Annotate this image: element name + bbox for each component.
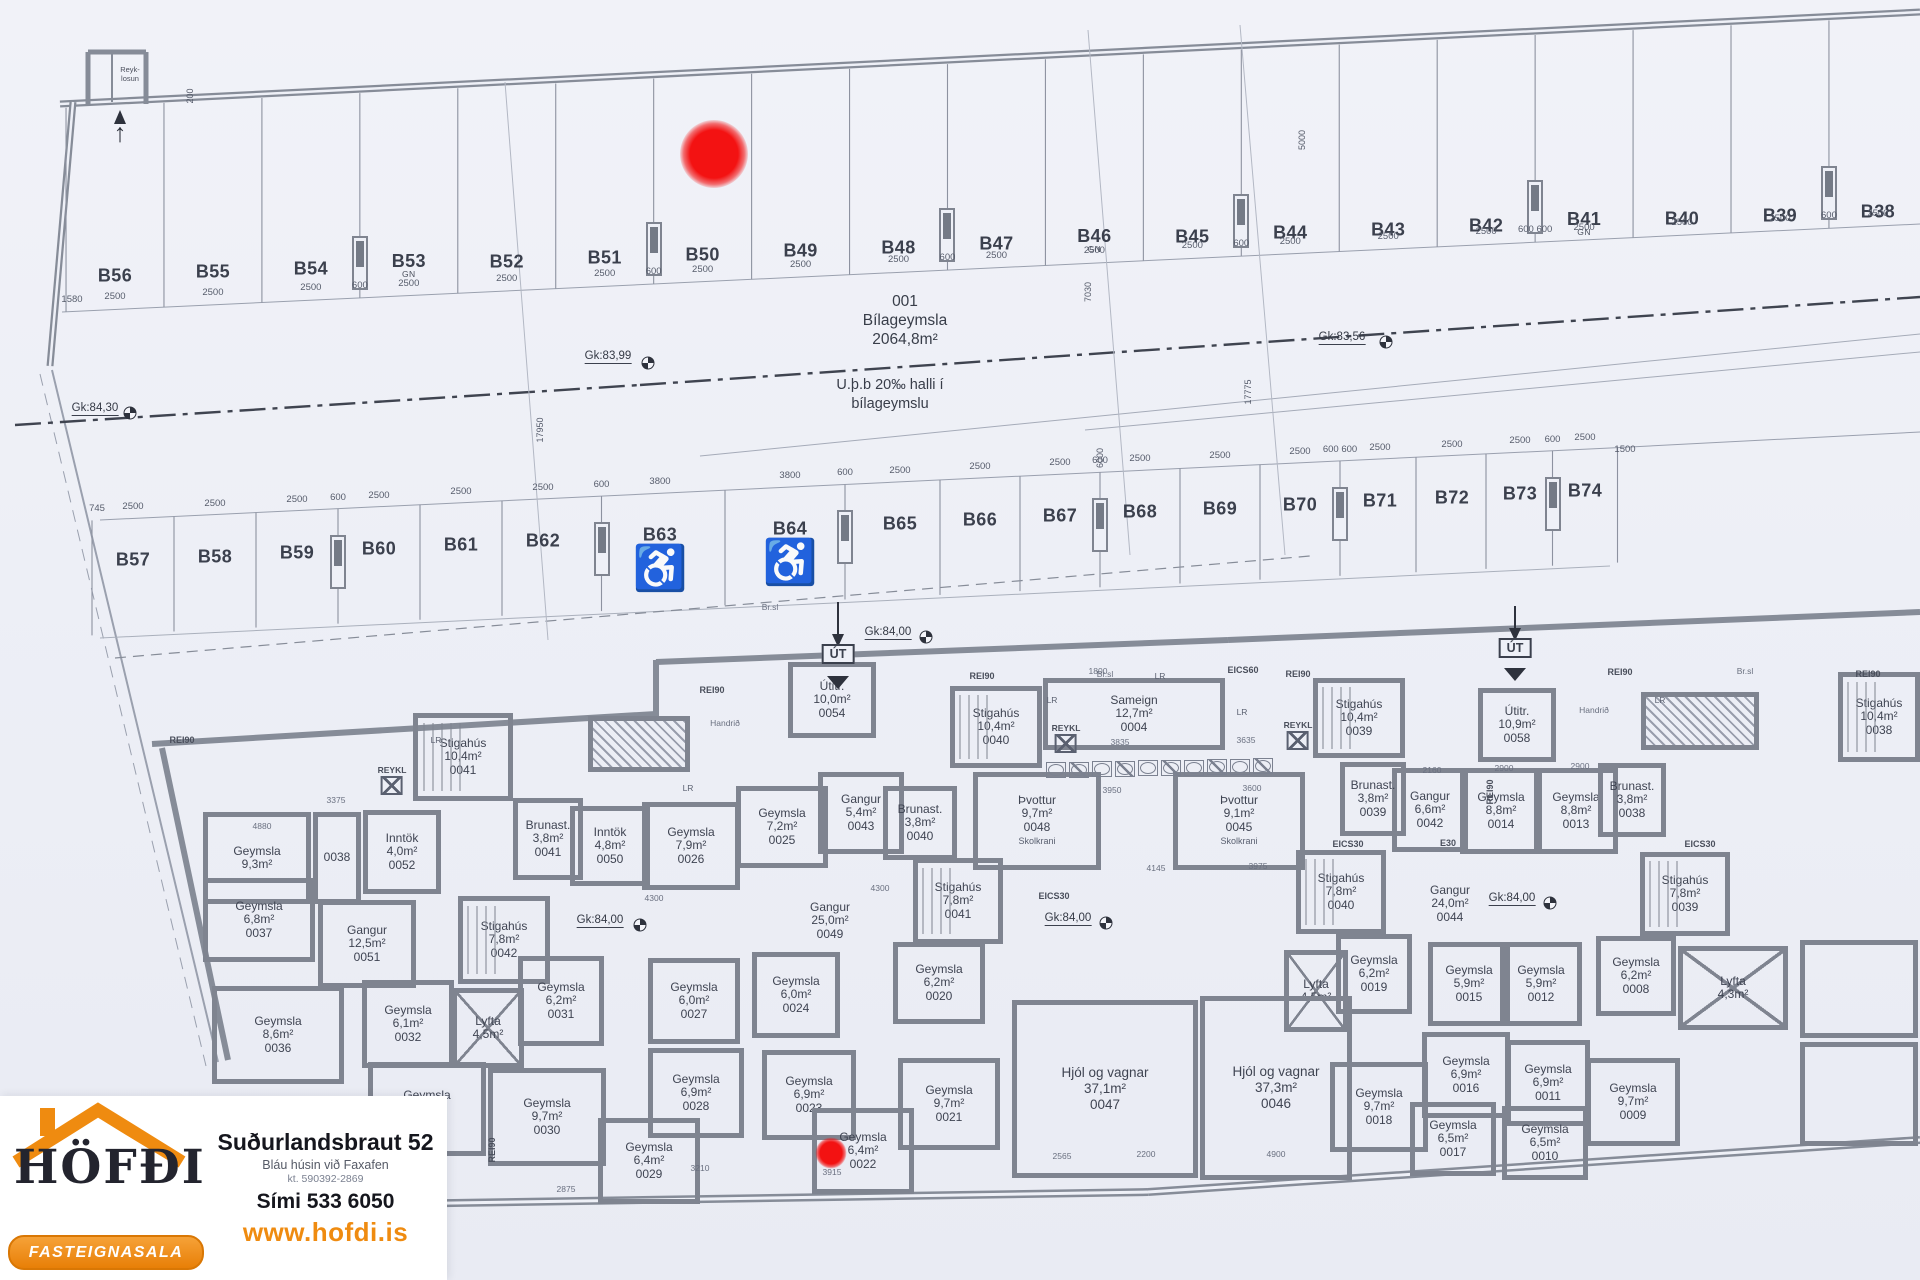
garage-area-name: Bílageymsla (830, 311, 980, 330)
floorplan-sheet: 001 Bílageymsla 2064,8m² U.þ.b 20‰ halli… (0, 0, 1920, 1280)
brsl-label: Br.sl (762, 602, 779, 612)
smoke-detector: REYKL (1284, 720, 1313, 750)
stall-dim: 2500 (888, 254, 909, 265)
agency-banner: FASTEIGNASALA (8, 1235, 204, 1270)
washer-icon (1207, 759, 1227, 775)
level-label: Gk:84,00 (1489, 892, 1536, 906)
dimension-label: 3210 (691, 1163, 710, 1173)
dimension-label-vertical: 17950 (535, 417, 545, 442)
benchmark-icon (124, 407, 137, 420)
slope-note-line2: bílageymslu (800, 395, 980, 414)
wall-rating-label: REI90 (1285, 669, 1310, 679)
room-0038: Brunast.3,8m²0038 (1598, 763, 1666, 837)
stall-dim: 2500 (1574, 432, 1595, 443)
room-0010: Geymsla6,5m²0010 (1502, 1106, 1588, 1180)
plan-line (60, 12, 1920, 104)
door-label: LR (1655, 695, 1666, 705)
smoke-detector: REYKL (1052, 723, 1081, 753)
room-0015: Geymsla5,9m²0015 (1428, 942, 1510, 1026)
exit-arrow-icon (1504, 668, 1526, 681)
room-0031: Geymsla6,2m²0031 (518, 956, 604, 1046)
parking-stall-b58: B58 (198, 546, 232, 567)
parking-stall-b51: B51 (588, 248, 622, 269)
wall-rating-label: REI90 (699, 685, 724, 695)
dimension-label-vertical: 7030 (1083, 282, 1093, 302)
plan-line (1085, 352, 1920, 430)
garage-title: 001 Bílageymsla 2064,8m² (830, 292, 980, 349)
room-0040: Stigahús10,4m²0040 (950, 686, 1042, 768)
benchmark-icon (920, 631, 933, 644)
room-0012: Geymsla5,9m²0012 (1500, 942, 1582, 1026)
room-0037: Geymsla6,8m²0037 (203, 878, 315, 962)
door-label: LR (1047, 695, 1058, 705)
parking-stall-b56: B56 (98, 266, 132, 287)
parking-stall-b60: B60 (362, 538, 396, 559)
stall-dim: 3800 (779, 470, 800, 481)
room-0039: Stigahús7,8m²0039 (1640, 852, 1730, 936)
handrail-label: Handrið (1579, 705, 1609, 715)
red-marker-0 (680, 120, 748, 188)
structural-column (837, 510, 853, 564)
benchmark-icon (634, 919, 647, 932)
room-0039: Brunast.3,8m²0039 (1340, 762, 1406, 836)
room-0030: Geymsla9,7m²0030 (488, 1068, 606, 1166)
stall-dim: 2500 (368, 490, 389, 501)
room-0041: Stigahús7,8m²0041 (913, 858, 1003, 944)
dimension-label: 3375 (327, 795, 346, 805)
column-dim: 600 (646, 266, 662, 277)
parking-stall-b73: B73 (1503, 484, 1537, 505)
parking-stall-b52: B52 (490, 251, 524, 272)
up-arrow-icon: ↑ (114, 118, 127, 149)
slope-note: U.þ.b 20‰ halli í bílageymslu (800, 376, 980, 414)
agency-address-sub: Bláu húsin við Faxafen (262, 1158, 388, 1172)
dimension-label: 2565 (1053, 1151, 1072, 1161)
slope-note-line1: U.þ.b 20‰ halli í (800, 376, 980, 395)
room-0032: Geymsla6,1m²0032 (362, 980, 454, 1068)
room-0028: Geymsla6,9m²0028 (648, 1048, 744, 1138)
washer-icon (1115, 761, 1135, 777)
room-0008: Geymsla6,2m²0008 (1596, 936, 1676, 1016)
stall-dim: 3800 (649, 476, 670, 487)
stall-dim: 2500 (594, 268, 615, 279)
structural-column (330, 535, 346, 589)
parking-stall-b68: B68 (1123, 502, 1157, 523)
agency-reg-number: kt. 590392-2869 (288, 1173, 364, 1185)
level-label: Gk:84,00 (865, 626, 912, 640)
wheelchair-icon: ♿ (633, 542, 688, 594)
plan-line (390, 1192, 1148, 1204)
room-0024: Geymsla6,0m²0024 (752, 952, 840, 1038)
room-0048: Þvottur9,7m²0048Skolkrani (973, 772, 1101, 870)
plan-line (1610, 432, 1920, 448)
room-0025: Geymsla7,2m²0025 (736, 786, 828, 868)
stair-hatch-0 (588, 716, 690, 772)
column-dim: 600 (837, 467, 853, 478)
dimension-label: 4300 (871, 883, 890, 893)
stall-dim: 2500 (1671, 217, 1692, 228)
parking-stall-b55: B55 (196, 262, 230, 283)
stall-dim: 2500 (204, 498, 225, 509)
chimney-label: Reyk- losun (113, 66, 147, 83)
stall-dim: 2500 (398, 278, 419, 289)
stall-dim: 2500 (1209, 450, 1230, 461)
stall-dim: 2500 (1084, 245, 1105, 256)
stall-dim: 2500 (104, 291, 125, 302)
level-label: Gk:83,56 (1319, 331, 1366, 345)
brsl-label: Br.sl (1737, 666, 1754, 676)
parking-stall-b57: B57 (116, 550, 150, 571)
benchmark-icon (1380, 336, 1393, 349)
washer-icon (1138, 760, 1158, 776)
room-0052: Inntök4,0m²0052 (363, 810, 441, 894)
column-dim: 600 (330, 492, 346, 503)
room-0045: Þvottur9,1m²0045Skolkrani (1173, 772, 1305, 870)
edge-dim: 1580 (61, 294, 82, 305)
structural-column (1545, 477, 1561, 531)
column-dim: 600 (1233, 238, 1249, 249)
stall-dim: 2500 (986, 250, 1007, 261)
dimension-label-vertical: 17775 (1243, 379, 1253, 404)
level-label: Gk:83,99 (585, 350, 632, 364)
room-lyfta: Lyfta4,3m² (1678, 946, 1788, 1030)
dimension-label: 2200 (1137, 1149, 1156, 1159)
agency-logo-graphic: HÖFÐI FASTEIGNASALA (0, 1096, 212, 1280)
dimension-label: 4145 (1147, 863, 1166, 873)
agency-phone: Sími 533 6050 (257, 1190, 395, 1214)
wall-rating-label: REI90 (1485, 779, 1495, 804)
room-unlabeled (1800, 1042, 1918, 1146)
dimension-label-vertical: 6000 (1095, 448, 1105, 468)
parking-stall-b59: B59 (280, 542, 314, 563)
parking-stall-b71: B71 (1363, 490, 1397, 511)
room-0014: Geymsla8,8m²0014 (1460, 768, 1542, 854)
level-label: Gk:84,00 (577, 914, 624, 928)
edge-dim: 1500 (1614, 444, 1635, 455)
plan-line (1240, 25, 1285, 555)
parking-stall-b66: B66 (963, 510, 997, 531)
structural-column (594, 522, 610, 576)
room-0026: Geymsla7,9m²0026 (642, 802, 740, 890)
parking-stall-b62: B62 (526, 530, 560, 551)
room-lyfta: Lyfta4,5m² (452, 988, 524, 1068)
stall-dim: 2500 (1049, 457, 1070, 468)
door-label: LR (683, 783, 694, 793)
washer-icon (1253, 758, 1273, 774)
stall-dim: 2500 (1280, 236, 1301, 247)
wheelchair-icon: ♿ (763, 536, 818, 588)
stall-dim: 2500 (1574, 222, 1595, 233)
stall-dim: 2500 (496, 273, 517, 284)
stall-dim: 2500 (889, 465, 910, 476)
plan-line (50, 102, 73, 366)
agency-brand: HÖFÐI (14, 1140, 198, 1195)
stall-dim: 2500 (1369, 442, 1390, 453)
parking-stall-b50: B50 (686, 244, 720, 265)
wall-rating-label: REI90 (487, 1137, 497, 1162)
door-label: LR (431, 735, 442, 745)
plan-line (1228, 612, 1920, 640)
red-marker-1 (816, 1138, 847, 1169)
dimension-label: 3635 (1237, 735, 1256, 745)
parking-stall-b53: B53GN (392, 251, 426, 279)
wall-rating-label: REI90 (169, 735, 194, 745)
column-dim: 600 (940, 252, 956, 263)
wall-rating-label: REI90 (1607, 667, 1632, 677)
agency-website: www.hofdi.is (243, 1217, 408, 1248)
chimney-line2: losun (113, 75, 147, 84)
washer-icon (1161, 760, 1181, 776)
dimension-label: 3950 (1103, 785, 1122, 795)
plan-line (40, 374, 206, 1066)
stall-dim: 2500 (692, 264, 713, 275)
parking-stall-b63: B63 (643, 525, 677, 546)
level-label: Gk:84,00 (1045, 912, 1092, 926)
room-0041: Stigahús10,4m²0041 (413, 713, 513, 801)
washer-icon (1184, 760, 1204, 776)
edge-dim: 745 (89, 503, 105, 514)
washer-icon (1069, 762, 1089, 778)
dimension-label: 4880 (253, 821, 272, 831)
room-0051: Gangur12,5m²0051 (318, 900, 416, 988)
benchmark-icon (642, 357, 655, 370)
stall-dim: 2500 (1769, 213, 1790, 224)
parking-stall-b69: B69 (1203, 498, 1237, 519)
parking-stall-b54: B54 (294, 258, 328, 279)
plan-line (505, 82, 548, 640)
agency-address: Suðurlandsbraut 52 (218, 1129, 434, 1156)
exit-sign-0: ÚT (822, 644, 855, 664)
room-0036: Geymsla8,6m²0036 (212, 986, 344, 1084)
door-label: LR (1155, 671, 1166, 681)
parking-stall-b61: B61 (444, 534, 478, 555)
column-dim: 600 600 (1323, 444, 1357, 455)
room-0054: Útitr.10,0m²0054 (788, 662, 876, 738)
room-0040: Stigahús7,8m²0040 (1296, 850, 1386, 934)
stall-dim: 2500 (122, 501, 143, 512)
door-label: LR (1237, 707, 1248, 717)
dimension-label: 3600 (1243, 783, 1262, 793)
parking-stall-b64: B64 (773, 519, 807, 540)
parking-stall-b67: B67 (1043, 506, 1077, 527)
room-0038: Stigahús10,4m²0038 (1838, 672, 1920, 762)
stall-dim: 2500 (1289, 446, 1310, 457)
stall-dim: 2500 (1378, 231, 1399, 242)
plan-line (152, 714, 656, 744)
room-0047: Hjól og vagnar37,1m²0047 (1012, 1000, 1198, 1178)
agency-logo-card: HÖFÐI FASTEIGNASALA Suðurlandsbraut 52 B… (0, 1096, 447, 1280)
dimension-label: 1800 (1089, 666, 1108, 676)
level-label: Gk:84,30 (72, 402, 119, 416)
stall-dim: 2500 (286, 494, 307, 505)
stall-dim: 2500 (300, 282, 321, 293)
dimension-label: 2160 (1423, 765, 1442, 775)
room-0040: Brunast.3,8m²0040 (883, 786, 957, 860)
column-dim: 600 (1545, 434, 1561, 445)
dimension-label: 2900 (1571, 761, 1590, 771)
stall-dim: 2500 (1867, 208, 1888, 219)
plan-line (1088, 30, 1130, 555)
dimension-label: 2900 (1495, 763, 1514, 773)
room-unlabeled (1800, 940, 1918, 1038)
plan-line (52, 370, 218, 1062)
structural-column (1092, 498, 1108, 552)
dimension-label: 4900 (1267, 1149, 1286, 1159)
parking-stall-b70: B70 (1283, 494, 1317, 515)
washer-icon (1230, 759, 1250, 775)
garage-area-id: 001 (830, 292, 980, 311)
benchmark-icon (1544, 897, 1557, 910)
stall-dim: 2500 (1129, 453, 1150, 464)
stall-dim: 2500 (790, 259, 811, 270)
dimension-label: 3835 (1111, 737, 1130, 747)
garage-area-size: 2064,8m² (830, 330, 980, 349)
dimension-label: 3915 (823, 1167, 842, 1177)
washer-icon (1092, 761, 1112, 777)
wall-rating-label: EICS60 (1227, 665, 1258, 675)
room-0039: Stigahús10,4m²0039 (1313, 678, 1405, 758)
plan-line (656, 640, 1228, 662)
wall-rating-label: EICS30 (1332, 839, 1363, 849)
room-0050: Inntök4,8m²0050 (570, 806, 650, 886)
dimension-label: 3975 (1249, 861, 1268, 871)
benchmark-icon (1100, 917, 1113, 930)
dimension-label: 2875 (557, 1184, 576, 1194)
column-dim: 600 600 (1518, 224, 1552, 235)
parking-stall-b72: B72 (1435, 487, 1469, 508)
room-0049: Gangur25,0m²0049 (770, 888, 890, 954)
room-0009: Geymsla9,7m²0009 (1586, 1058, 1680, 1146)
plan-line (100, 566, 1610, 638)
washer-icon (1046, 762, 1066, 778)
wall-rating-label: EICS30 (1684, 839, 1715, 849)
stall-dim: 2500 (202, 287, 223, 298)
room-0020: Geymsla6,2m²0020 (893, 942, 985, 1024)
structural-column (1332, 487, 1348, 541)
stall-dim: 2500 (1476, 226, 1497, 237)
wall-rating-label: E30 (1440, 838, 1456, 848)
room-0038: 0038 (313, 812, 361, 904)
room-0021: Geymsla9,7m²0021 (898, 1058, 1000, 1150)
parking-stall-b65: B65 (883, 513, 917, 534)
exit-arrow-icon (827, 676, 849, 689)
agency-info: Suðurlandsbraut 52 Bláu húsin við Faxafe… (212, 1096, 447, 1280)
stall-dim: 2500 (1509, 435, 1530, 446)
wall-rating-label: REI90 (969, 671, 994, 681)
room-0017: Geymsla6,5m²0017 (1410, 1102, 1496, 1176)
dimension-label-vertical: 5000 (1297, 130, 1307, 150)
column-dim: 600 (594, 479, 610, 490)
dimension-label-vertical: 200 (185, 88, 195, 103)
column-dim: 600 (1821, 210, 1837, 221)
wall-rating-label: EICS30 (1038, 891, 1069, 901)
parking-stall-b74: B74 (1568, 481, 1602, 502)
handrail-label: Handrið (710, 718, 740, 728)
stall-dim: 2500 (1182, 240, 1203, 251)
stall-dim: 2500 (1441, 439, 1462, 450)
stall-dim: 2500 (450, 486, 471, 497)
wall-rating-label: REI90 (1855, 669, 1880, 679)
smoke-detector: REYKL (378, 765, 407, 795)
room-0058: Útitr.10,9m²0058 (1478, 688, 1556, 762)
stall-dim: 2500 (969, 461, 990, 472)
exit-sign-1: ÚT (1499, 638, 1532, 658)
stall-dim: 2500 (532, 482, 553, 493)
room-0027: Geymsla6,0m²0027 (648, 958, 740, 1044)
column-dim: 600 (352, 280, 368, 291)
dimension-label: 4300 (645, 893, 664, 903)
